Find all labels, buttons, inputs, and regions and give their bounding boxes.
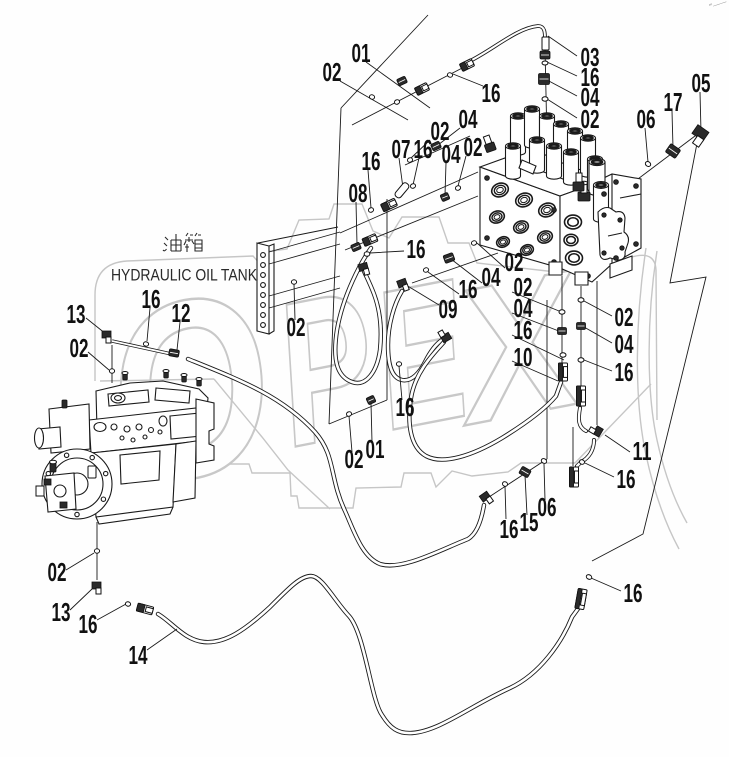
svg-text:09: 09 <box>439 294 458 324</box>
svg-text:02: 02 <box>48 557 67 587</box>
svg-text:07: 07 <box>392 134 411 164</box>
svg-text:04: 04 <box>482 262 501 292</box>
svg-text:12: 12 <box>172 298 191 328</box>
svg-text:04: 04 <box>459 104 478 134</box>
svg-text:16: 16 <box>617 464 636 494</box>
svg-text:06: 06 <box>538 492 557 522</box>
svg-text:16: 16 <box>142 284 161 314</box>
svg-text:16: 16 <box>396 392 415 422</box>
svg-text:HYDRAULIC OIL TANK: HYDRAULIC OIL TANK <box>111 265 257 284</box>
svg-text:14: 14 <box>129 640 148 670</box>
svg-text:13: 13 <box>67 299 86 329</box>
svg-text:16: 16 <box>407 234 426 264</box>
svg-text:02: 02 <box>581 104 600 134</box>
svg-text:02: 02 <box>70 333 89 363</box>
svg-text:08: 08 <box>349 178 368 208</box>
svg-text:02: 02 <box>345 444 364 474</box>
svg-text:16: 16 <box>79 609 98 639</box>
svg-text:02: 02 <box>287 312 306 342</box>
svg-text:15: 15 <box>520 507 539 537</box>
svg-text:02: 02 <box>323 57 342 87</box>
svg-text:06: 06 <box>637 104 656 134</box>
svg-text:16: 16 <box>624 578 643 608</box>
svg-text:16: 16 <box>459 274 478 304</box>
svg-text:17: 17 <box>664 87 683 117</box>
svg-text:02: 02 <box>464 132 483 162</box>
svg-text:16: 16 <box>615 357 634 387</box>
svg-text:16: 16 <box>514 315 533 345</box>
svg-text:16: 16 <box>500 514 519 544</box>
svg-text:16: 16 <box>414 134 433 164</box>
svg-text:10: 10 <box>514 342 533 372</box>
svg-text:04: 04 <box>615 329 634 359</box>
svg-text:01: 01 <box>366 434 385 464</box>
svg-text:16: 16 <box>362 146 381 176</box>
svg-text:04: 04 <box>442 139 461 169</box>
svg-text:16: 16 <box>482 78 501 108</box>
svg-text:11: 11 <box>633 436 652 466</box>
svg-text:13: 13 <box>52 597 71 627</box>
svg-text:05: 05 <box>692 68 711 98</box>
svg-text:01: 01 <box>352 38 371 68</box>
svg-text:02: 02 <box>615 302 634 332</box>
